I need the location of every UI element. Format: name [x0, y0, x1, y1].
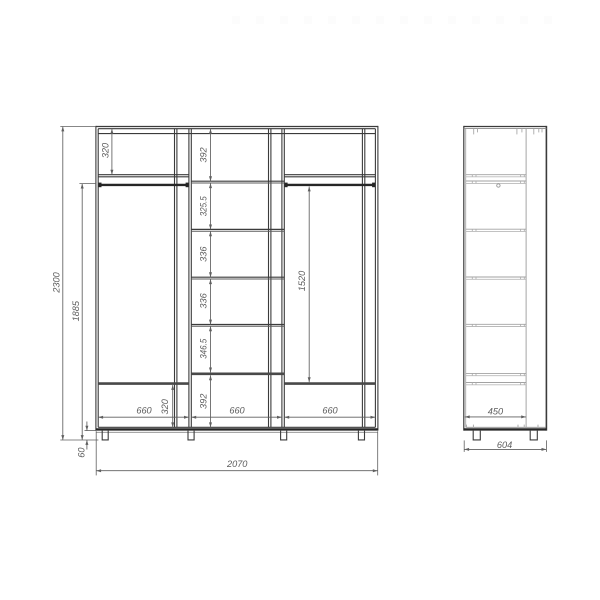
svg-text:660: 660 — [322, 405, 338, 415]
svg-text:660: 660 — [136, 405, 152, 415]
svg-text:604: 604 — [497, 440, 512, 450]
svg-text:660: 660 — [229, 405, 245, 415]
svg-text:2070: 2070 — [226, 459, 248, 469]
svg-text:346.5: 346.5 — [199, 338, 209, 359]
svg-text:60: 60 — [76, 447, 86, 458]
svg-text:320: 320 — [100, 142, 110, 158]
svg-text:392: 392 — [199, 394, 209, 409]
svg-text:450: 450 — [488, 407, 504, 417]
svg-text:1885: 1885 — [71, 300, 81, 321]
svg-text:1520: 1520 — [297, 270, 307, 291]
svg-text:325.5: 325.5 — [199, 196, 209, 217]
svg-text:336: 336 — [199, 292, 209, 308]
svg-text:2300: 2300 — [52, 271, 62, 293]
svg-text:320: 320 — [160, 398, 170, 414]
svg-text:336: 336 — [199, 246, 209, 262]
svg-text:392: 392 — [199, 147, 209, 162]
